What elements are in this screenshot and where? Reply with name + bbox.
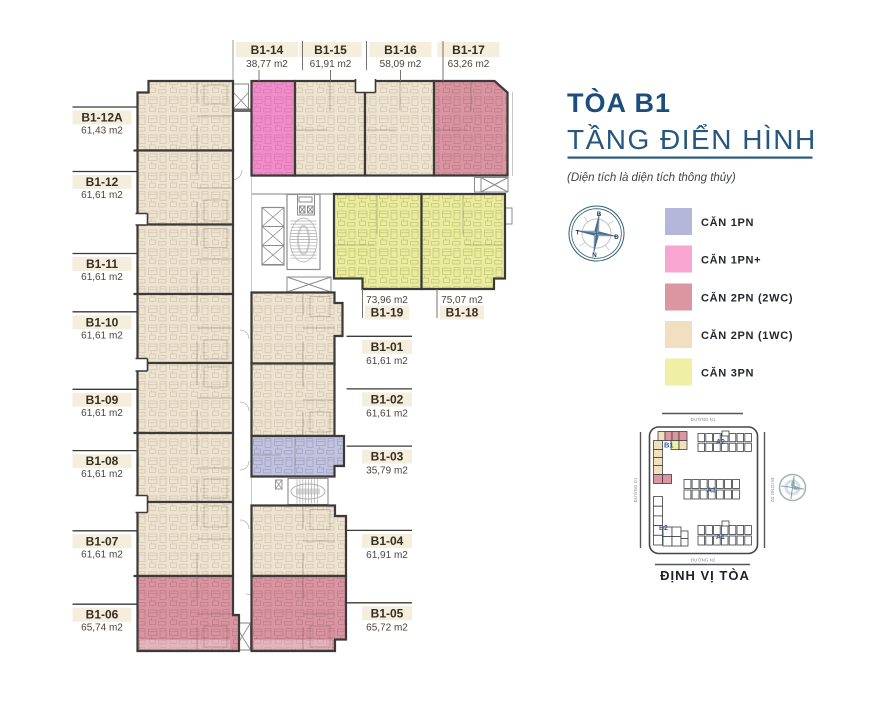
svg-text:75,07 m2: 75,07 m2 [441,295,483,306]
svg-text:61,61 m2: 61,61 m2 [81,190,123,201]
svg-text:B1-01: B1-01 [371,340,404,354]
svg-text:ĐƯỜNG N2: ĐƯỜNG N2 [691,557,716,563]
svg-text:ĐƯỜNG D1: ĐƯỜNG D1 [632,477,638,502]
svg-text:B1-12A: B1-12A [81,111,123,125]
svg-text:A2: A2 [716,439,725,446]
svg-text:B1-17: B1-17 [452,43,485,57]
svg-text:B1-06: B1-06 [86,608,119,622]
svg-text:61,61 m2: 61,61 m2 [366,356,408,367]
svg-text:61,61 m2: 61,61 m2 [366,408,408,419]
svg-text:ĐƯỜNG D2: ĐƯỜNG D2 [770,478,776,503]
svg-text:B: B [597,211,602,218]
svg-text:A1: A1 [716,534,725,541]
svg-text:(Diện tích là diện tích thông: (Diện tích là diện tích thông thủy) [567,172,736,184]
svg-text:B1-10: B1-10 [86,315,119,329]
svg-text:61,61 m2: 61,61 m2 [81,272,123,283]
svg-text:B1-05: B1-05 [371,606,404,620]
svg-text:B1-09: B1-09 [86,393,119,407]
svg-text:TÒA B1: TÒA B1 [567,87,671,118]
svg-text:B1-02: B1-02 [371,392,404,406]
svg-text:B1-19: B1-19 [371,306,404,320]
svg-text:CĂN 3PN: CĂN 3PN [701,367,754,380]
svg-text:A3: A3 [707,488,716,495]
svg-text:B1: B1 [664,441,674,450]
svg-text:63,26 m2: 63,26 m2 [448,59,490,70]
svg-text:ĐỊNH VỊ TÒA: ĐỊNH VỊ TÒA [660,568,750,583]
svg-text:CĂN 1PN+: CĂN 1PN+ [701,254,761,267]
svg-text:38,77 m2: 38,77 m2 [246,59,288,70]
svg-text:B2: B2 [659,525,668,532]
svg-text:CĂN 1PN: CĂN 1PN [701,216,754,229]
svg-text:B1-04: B1-04 [371,534,404,548]
svg-text:65,72 m2: 65,72 m2 [366,622,408,633]
svg-text:N: N [592,252,597,259]
svg-text:61,43 m2: 61,43 m2 [81,126,123,137]
svg-text:61,61 m2: 61,61 m2 [81,408,123,419]
svg-text:61,91 m2: 61,91 m2 [310,59,352,70]
svg-text:Đ: Đ [614,234,619,241]
svg-text:58,09 m2: 58,09 m2 [380,59,422,70]
svg-text:61,91 m2: 61,91 m2 [366,550,408,561]
svg-text:B1-15: B1-15 [314,43,347,57]
svg-text:61,61 m2: 61,61 m2 [81,469,123,480]
svg-text:B1-16: B1-16 [384,43,417,57]
svg-text:65,74 m2: 65,74 m2 [81,623,123,634]
svg-text:73,96 m2: 73,96 m2 [366,295,408,306]
svg-text:CĂN 2PN (1WC): CĂN 2PN (1WC) [701,329,793,342]
svg-text:B1-08: B1-08 [86,454,119,468]
svg-text:T: T [576,230,580,237]
svg-text:61,61 m2: 61,61 m2 [81,330,123,341]
svg-text:B1-12: B1-12 [86,175,119,189]
svg-text:B1-11: B1-11 [86,257,118,271]
svg-text:B1-14: B1-14 [251,43,284,57]
svg-text:61,61 m2: 61,61 m2 [81,549,123,560]
svg-text:TẦNG ĐIỂN HÌNH: TẦNG ĐIỂN HÌNH [567,124,817,155]
svg-text:CĂN 2PN (2WC): CĂN 2PN (2WC) [701,292,793,305]
svg-text:35,79 m2: 35,79 m2 [366,466,408,477]
svg-text:B1-03: B1-03 [371,450,404,464]
svg-text:B1-18: B1-18 [446,306,479,320]
svg-text:B1-07: B1-07 [86,534,119,548]
svg-text:ĐƯỜNG N1: ĐƯỜNG N1 [691,416,716,422]
